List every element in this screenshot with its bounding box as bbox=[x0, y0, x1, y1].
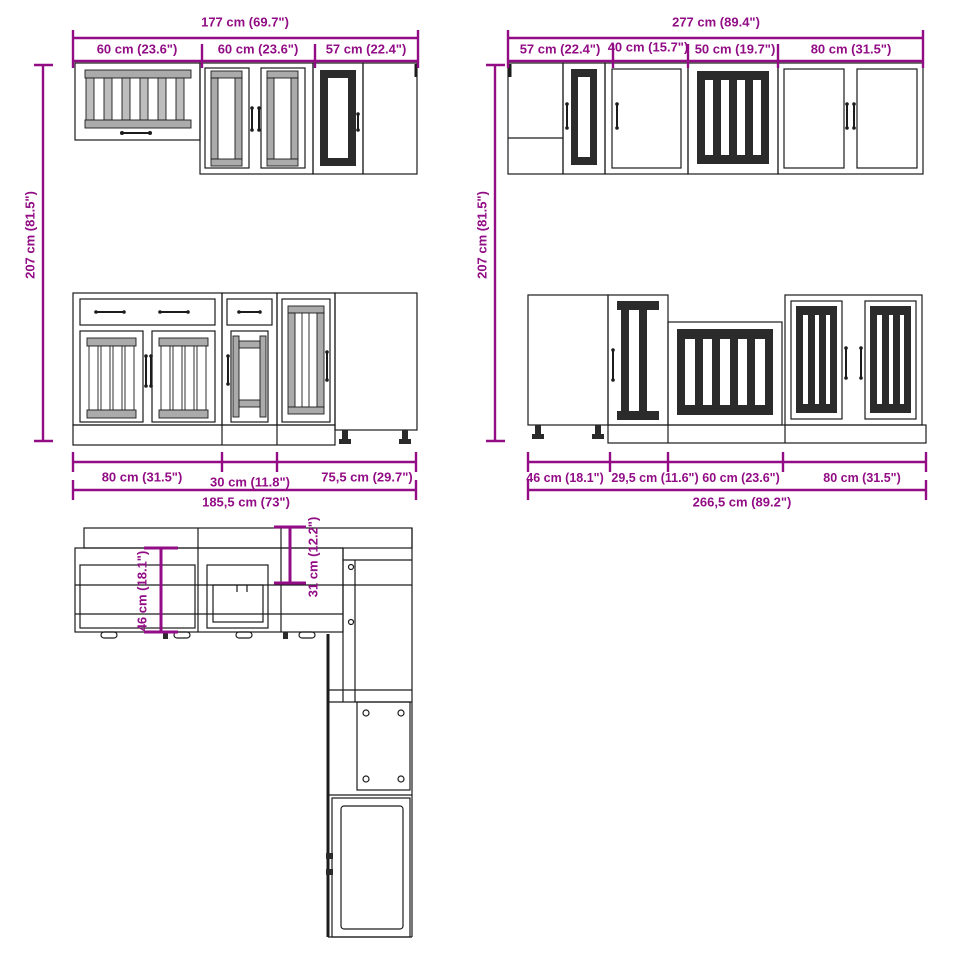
dim-label-wall-right-total: 277 cm (89.4") bbox=[672, 16, 760, 29]
dim-label-height-right: 207 cm (81.5") bbox=[476, 191, 489, 279]
dim-label-base-right-seg1: 46 cm (18.1") bbox=[526, 472, 604, 485]
dim-label-wall-right-seg3: 50 cm (19.7") bbox=[695, 43, 776, 56]
dim-label-wall-right-seg2: 40 cm (15.7") bbox=[608, 41, 689, 54]
diagram-canvas: 177 cm (69.7") 60 cm (23.6") 60 cm (23.6… bbox=[0, 0, 955, 955]
dim-label-base-left-seg3: 75,5 cm (29.7") bbox=[321, 471, 412, 484]
dim-label-wall-left-total: 177 cm (69.7") bbox=[201, 16, 289, 29]
dim-label-wall-right-seg1: 57 cm (22.4") bbox=[520, 43, 601, 56]
dim-label-base-right-total: 266,5 cm (89.2") bbox=[693, 496, 792, 509]
dim-label-wall-left-seg3: 57 cm (22.4") bbox=[326, 43, 407, 56]
dim-label-height-left: 207 cm (81.5") bbox=[24, 191, 37, 279]
dim-label-wall-left-seg1: 60 cm (23.6") bbox=[97, 43, 178, 56]
dim-label-base-left-seg1: 80 cm (31.5") bbox=[102, 471, 183, 484]
dim-label-wall-left-seg2: 60 cm (23.6") bbox=[218, 43, 299, 56]
dim-label-base-right-seg2: 29,5 cm (11.6") bbox=[611, 472, 698, 485]
dim-label-base-left-total: 185,5 cm (73") bbox=[202, 496, 290, 509]
dim-label-wall-right-seg4: 80 cm (31.5") bbox=[811, 43, 892, 56]
dim-label-base-right-seg3: 60 cm (23.6") bbox=[702, 472, 780, 485]
dim-label-topview-base-depth: 46 cm (18.1") bbox=[136, 551, 149, 632]
dim-label-topview-wall-depth: 31 cm (12.2") bbox=[307, 517, 320, 598]
dim-label-base-right-seg4: 80 cm (31.5") bbox=[823, 472, 901, 485]
dim-label-base-left-seg2: 30 cm (11.8") bbox=[210, 476, 290, 489]
